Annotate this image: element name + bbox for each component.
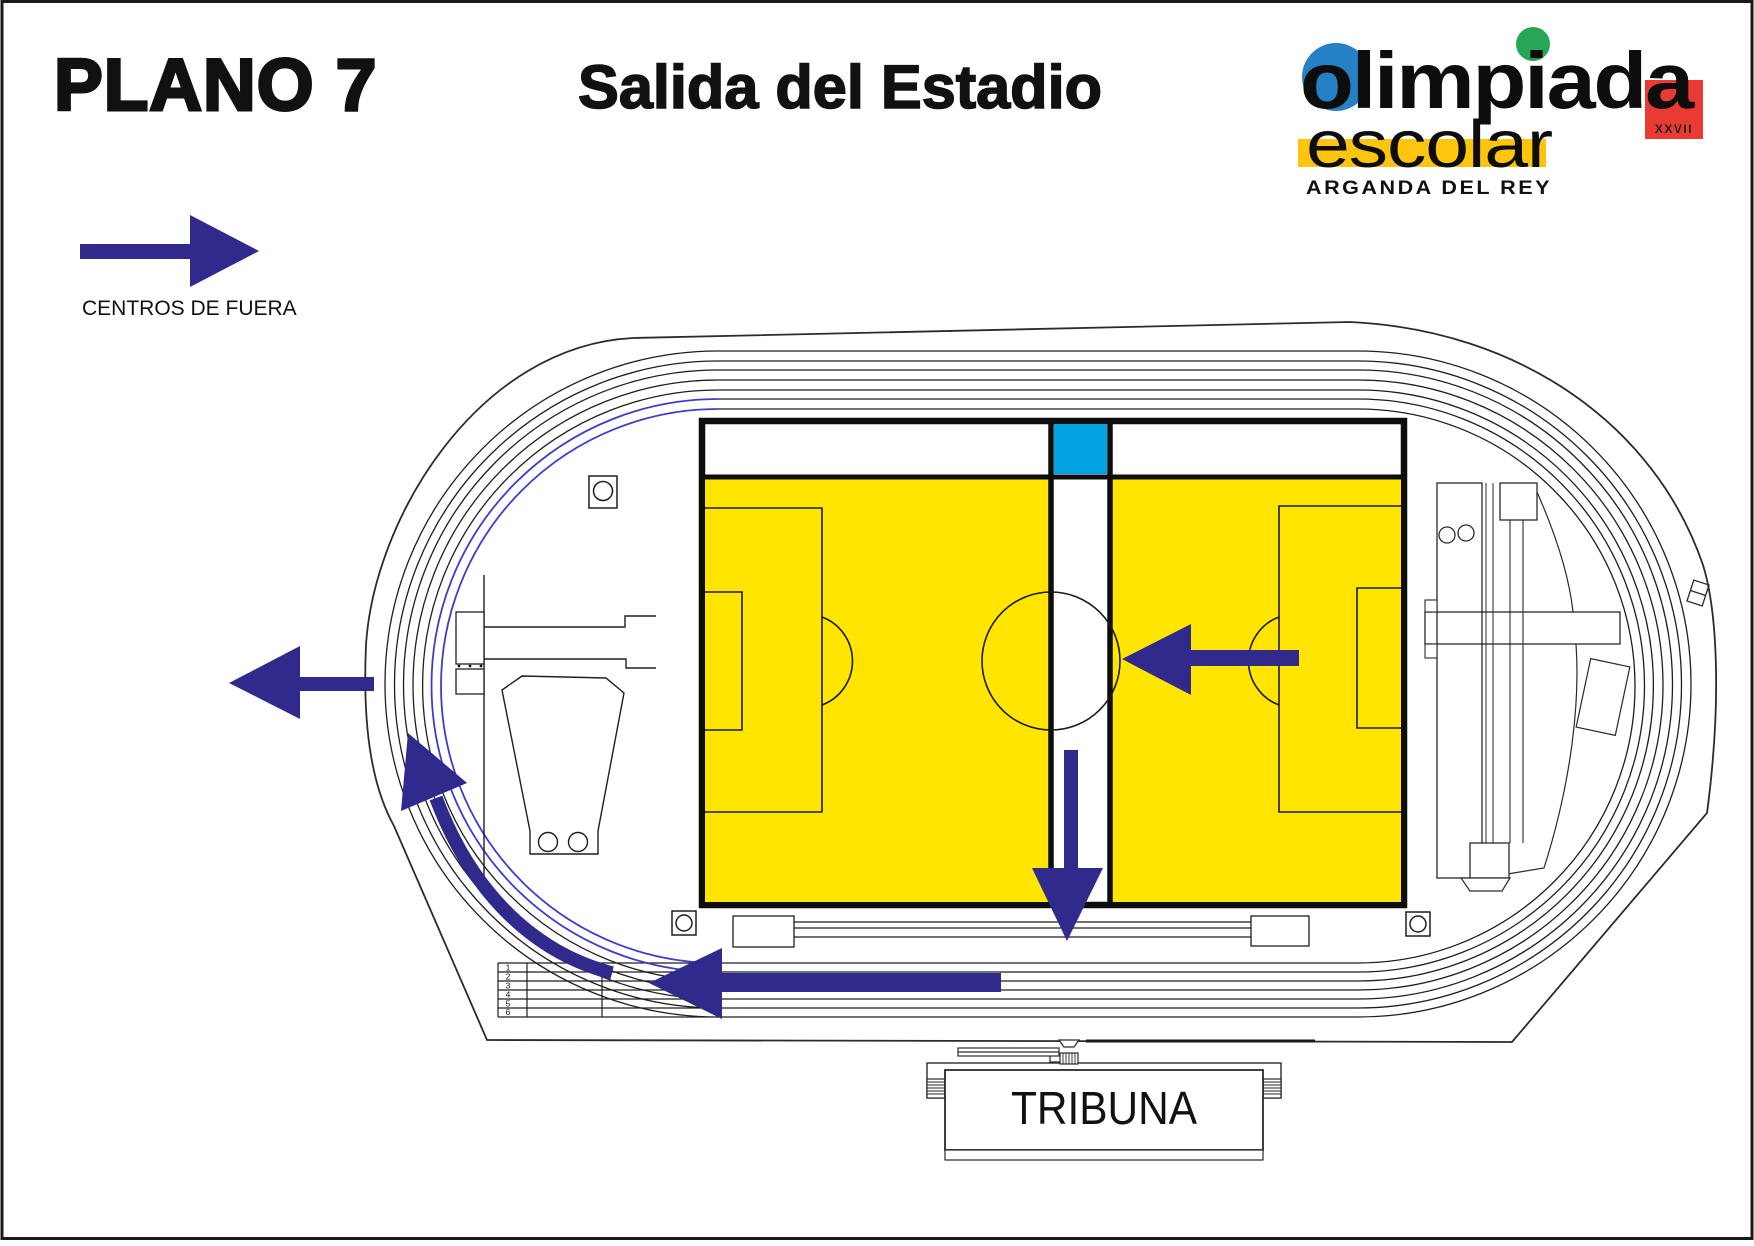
- svg-text:Salida del Estadio: Salida del Estadio: [578, 53, 1102, 121]
- svg-text:ARGANDA DEL REY: ARGANDA DEL REY: [1306, 178, 1552, 199]
- svg-text:escolar: escolar: [1306, 107, 1553, 182]
- svg-text:6: 6: [506, 1007, 511, 1017]
- svg-text:PLANO 7: PLANO 7: [54, 45, 377, 126]
- svg-text:CENTROS DE FUERA: CENTROS DE FUERA: [82, 297, 297, 320]
- svg-text:XXVII: XXVII: [1655, 122, 1693, 136]
- svg-text:TRIBUNA: TRIBUNA: [1011, 1082, 1197, 1134]
